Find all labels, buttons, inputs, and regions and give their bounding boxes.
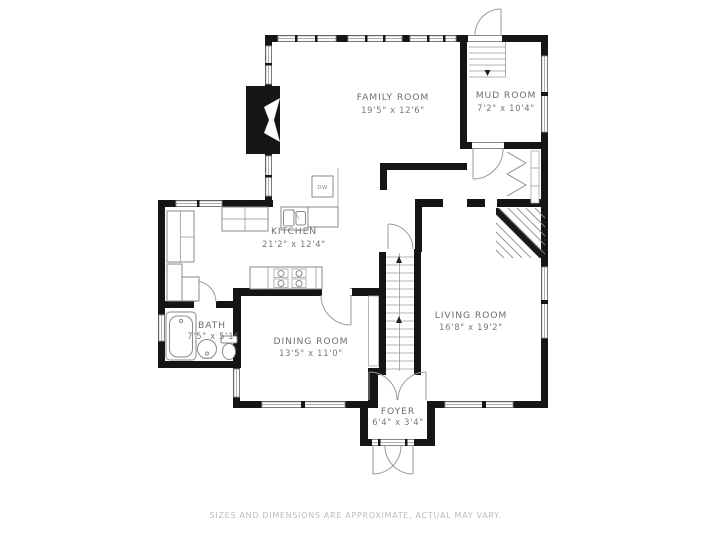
wall-stair-right (414, 249, 421, 375)
floor-plan-drawing: DW (0, 0, 711, 533)
hall-closet (507, 151, 539, 203)
wall-bath-bottom (158, 361, 241, 368)
bifold-door-icon (507, 174, 526, 196)
dishwasher-box: DW (312, 176, 333, 197)
window (410, 35, 456, 42)
foyer-label: FOYER (381, 406, 415, 417)
floor-plan-canvas: DW (0, 0, 711, 533)
stove-icon (250, 267, 322, 289)
wall-bath-top-left (158, 301, 194, 308)
main-staircase (386, 253, 414, 371)
bath-label: BATH (198, 320, 226, 331)
basement-staircase (454, 206, 586, 259)
wall-family-bottom-stub (380, 163, 387, 190)
front-door (372, 440, 414, 475)
window (159, 315, 165, 341)
bifold-door-icon (507, 152, 526, 174)
pedestal-sink-icon (198, 340, 217, 359)
wall-bath-top-right (216, 301, 241, 308)
family-room-dims: 19'5" x 12'6" (361, 105, 425, 115)
mudroom-hall-door (472, 143, 504, 180)
dining-door (321, 289, 352, 326)
bath-dims: 7'5" x 5'1" (187, 331, 239, 341)
wall-stair-left (379, 252, 386, 375)
fireplace-icon (246, 86, 280, 154)
living-room-dims: 16'8" x 19'2" (439, 322, 503, 332)
disclaimer-text: SIZES AND DIMENSIONS ARE APPROXIMATE, AC… (0, 511, 711, 520)
window (348, 35, 402, 42)
window (265, 46, 272, 84)
wall-hall-b (467, 199, 485, 207)
mudroom-staircase (469, 42, 506, 77)
wall-dining-top-right (350, 288, 382, 296)
window (234, 369, 240, 397)
stair-partition (369, 296, 379, 366)
window (265, 156, 272, 196)
window (541, 56, 548, 132)
wall-hall-c (497, 199, 548, 207)
dishwasher-label: DW (317, 185, 328, 191)
living-room-label: LIVING ROOM (435, 310, 507, 321)
window (262, 401, 345, 408)
window (445, 401, 513, 408)
wall-left (158, 200, 165, 368)
window (278, 35, 336, 42)
stair-up-arrow (396, 316, 402, 323)
refrigerator-icon (167, 211, 194, 262)
kitchen-dims: 21'2" x 12'4" (262, 239, 326, 249)
wall-living-left-upper (415, 199, 422, 252)
kitchen-label: KITCHEN (271, 226, 317, 237)
stair-down-arrow (485, 70, 491, 76)
window (176, 200, 222, 207)
cabinet (167, 264, 199, 301)
family-room-label: FAMILY ROOM (357, 92, 429, 103)
dining-room-label: DINING ROOM (274, 336, 349, 347)
entry-door (468, 9, 502, 42)
window (541, 267, 548, 338)
wall-family-bottom (380, 163, 467, 170)
mud-room-label: MUD ROOM (476, 90, 537, 101)
dining-room-dims: 13'5" x 11'0" (279, 348, 343, 358)
stair-door (388, 224, 413, 249)
wall-family-mud-separator (460, 35, 467, 149)
mud-room-dims: 7'2" x 10'4" (477, 103, 535, 113)
foyer-dims: 6'4" x 3'4" (372, 417, 424, 427)
